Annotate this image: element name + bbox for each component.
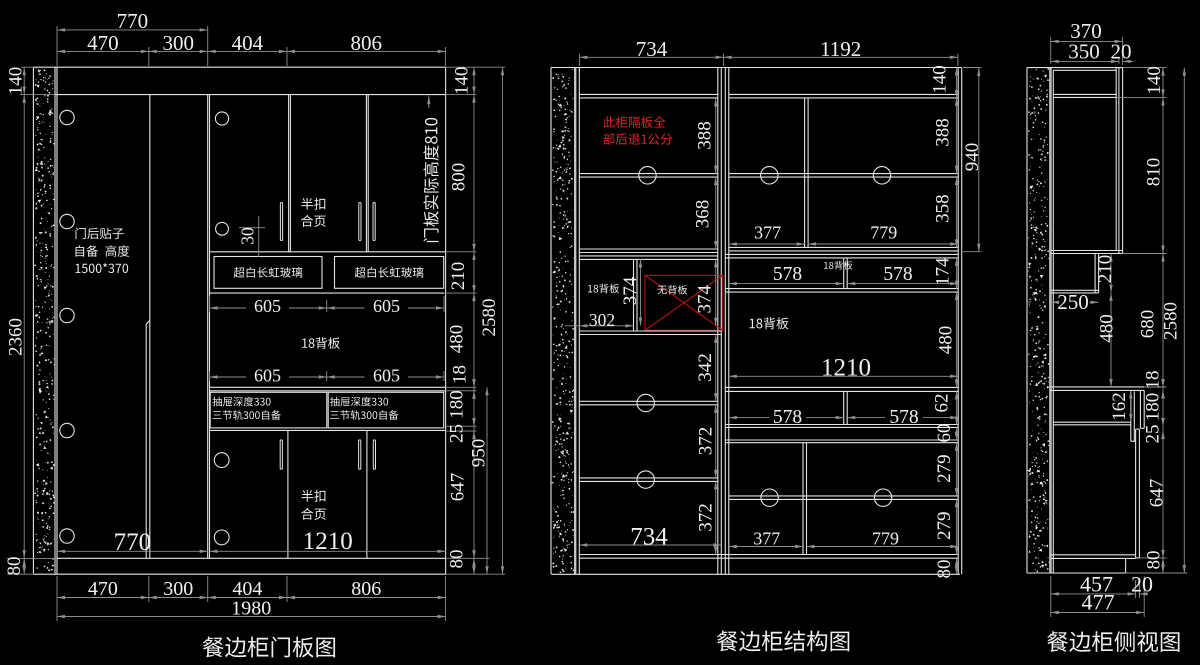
svg-text:80: 80: [1144, 551, 1165, 570]
svg-text:372: 372: [695, 503, 716, 532]
svg-text:140: 140: [1144, 66, 1165, 95]
svg-text:180: 180: [447, 390, 468, 419]
svg-text:806: 806: [351, 31, 383, 55]
svg-text:374: 374: [620, 276, 641, 305]
svg-text:810: 810: [1144, 158, 1165, 187]
svg-text:2360: 2360: [6, 318, 27, 356]
svg-text:734: 734: [630, 524, 668, 551]
svg-text:80: 80: [934, 560, 955, 579]
svg-text:480: 480: [936, 326, 957, 355]
svg-text:30: 30: [238, 227, 258, 245]
svg-text:350: 350: [1068, 40, 1100, 64]
svg-text:680: 680: [1138, 310, 1159, 339]
svg-text:388: 388: [933, 118, 954, 147]
svg-text:605: 605: [373, 296, 400, 316]
svg-text:477: 477: [1082, 590, 1115, 615]
svg-text:404: 404: [232, 578, 262, 600]
svg-text:18: 18: [1143, 371, 1164, 390]
svg-text:2580: 2580: [1161, 302, 1182, 340]
svg-text:300: 300: [163, 578, 193, 600]
svg-text:377: 377: [754, 223, 781, 243]
svg-text:647: 647: [1147, 479, 1168, 508]
svg-text:480: 480: [447, 325, 468, 354]
svg-text:302: 302: [589, 310, 615, 330]
svg-text:470: 470: [88, 578, 118, 600]
svg-text:180: 180: [1143, 393, 1164, 422]
svg-text:2580: 2580: [479, 299, 500, 337]
svg-text:210: 210: [1095, 255, 1116, 284]
svg-text:18: 18: [450, 365, 471, 384]
svg-text:770: 770: [114, 529, 152, 556]
svg-text:578: 578: [889, 407, 918, 428]
svg-text:734: 734: [636, 37, 668, 61]
svg-text:62: 62: [932, 394, 953, 413]
svg-text:480: 480: [1097, 314, 1118, 343]
svg-text:25: 25: [447, 424, 468, 443]
svg-text:140: 140: [5, 67, 26, 96]
svg-text:806: 806: [351, 578, 381, 600]
svg-text:80: 80: [447, 550, 468, 569]
svg-text:404: 404: [232, 31, 264, 55]
svg-text:60: 60: [934, 424, 955, 443]
svg-text:20: 20: [1111, 40, 1132, 64]
svg-text:140: 140: [452, 67, 473, 96]
svg-text:279: 279: [934, 454, 955, 483]
svg-text:358: 358: [933, 194, 954, 223]
svg-text:1192: 1192: [820, 37, 861, 61]
svg-text:770: 770: [117, 9, 149, 33]
svg-text:279: 279: [934, 511, 955, 540]
svg-text:250: 250: [1057, 290, 1089, 314]
svg-text:1210: 1210: [303, 528, 353, 555]
svg-text:174: 174: [933, 257, 954, 286]
svg-text:377: 377: [753, 529, 780, 549]
svg-text:578: 578: [773, 264, 802, 285]
svg-text:950: 950: [469, 439, 490, 468]
svg-text:374: 374: [695, 284, 716, 313]
svg-text:940: 940: [962, 143, 983, 172]
svg-text:1980: 1980: [231, 598, 271, 620]
svg-text:162: 162: [1109, 392, 1130, 421]
svg-text:605: 605: [373, 366, 400, 386]
svg-text:779: 779: [870, 223, 897, 243]
svg-text:342: 342: [695, 353, 716, 382]
svg-text:605: 605: [254, 296, 281, 316]
svg-text:25: 25: [1143, 425, 1164, 444]
svg-text:800: 800: [449, 163, 470, 192]
svg-text:210: 210: [448, 262, 469, 291]
svg-text:388: 388: [695, 121, 716, 150]
svg-text:578: 578: [773, 407, 802, 428]
svg-text:779: 779: [872, 529, 899, 549]
svg-text:20: 20: [1131, 572, 1153, 597]
svg-text:140: 140: [930, 65, 951, 94]
svg-text:300: 300: [163, 31, 195, 55]
svg-text:80: 80: [4, 557, 25, 576]
svg-text:605: 605: [254, 366, 281, 386]
svg-text:372: 372: [695, 427, 716, 456]
svg-text:368: 368: [693, 200, 714, 229]
svg-text:647: 647: [448, 473, 469, 502]
svg-text:1210: 1210: [821, 355, 871, 382]
svg-text:470: 470: [87, 31, 119, 55]
svg-text:578: 578: [883, 264, 912, 285]
